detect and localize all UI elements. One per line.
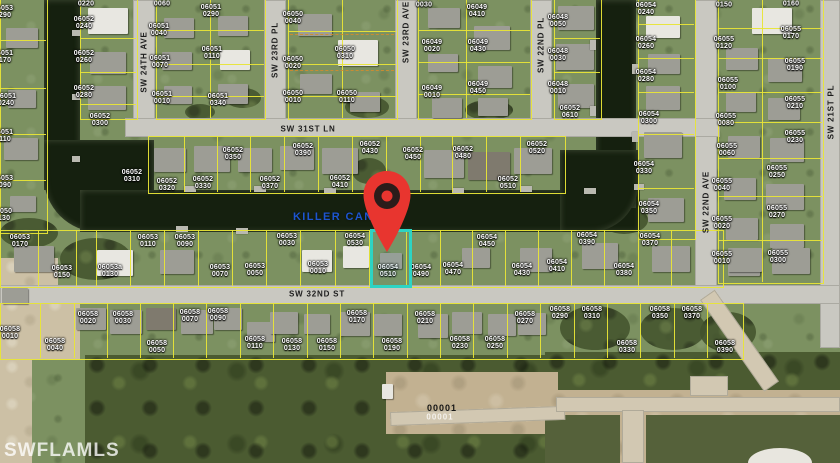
- parcel-line: [574, 303, 575, 358]
- parcel-label: 060550230: [785, 130, 805, 144]
- parcel-label: 060540470: [443, 262, 463, 276]
- parcel-label: 060580390: [715, 340, 735, 354]
- street-pavement: [125, 118, 720, 137]
- parcel-label: 060520480: [453, 146, 473, 160]
- mls-watermark: SWFLAMLS: [4, 440, 120, 462]
- parcel-label: 060510170: [0, 50, 13, 64]
- parcel-line: [164, 230, 165, 286]
- parcel-label: 060540450: [477, 234, 497, 248]
- dirt-road: [690, 376, 728, 396]
- parcel-line: [288, 31, 396, 32]
- parcel-label: 060490020: [422, 39, 442, 53]
- parcel-label: 060550120: [714, 36, 734, 50]
- parcel-label: 060540300: [639, 111, 659, 125]
- parcel-line: [640, 303, 641, 358]
- house-roof: [382, 384, 393, 399]
- parcel-line: [40, 303, 41, 358]
- parcel-label: 060510240: [0, 93, 16, 107]
- parcel-label: 060520610: [560, 105, 580, 119]
- parcel-line: [638, 188, 694, 189]
- vacant-lot-block: [646, 415, 840, 463]
- parcel-label: 060580170: [347, 310, 367, 324]
- parcel-line: [76, 230, 77, 286]
- parcel-label: 060550020: [712, 216, 732, 230]
- parcel-label: 060520330: [193, 176, 213, 190]
- parcel-line: [198, 230, 199, 286]
- parcel-label: 060510290: [201, 4, 221, 18]
- parcel-label: 06053a0130: [98, 264, 123, 278]
- parcel-label: 0220: [78, 1, 94, 8]
- parcel-label: 060550010: [712, 251, 732, 265]
- parcel-line: [284, 136, 285, 192]
- parcel-line: [232, 230, 233, 286]
- parcel-line: [107, 303, 108, 358]
- parcel-label: 060540280: [636, 69, 656, 83]
- parcel-line: [288, 64, 396, 65]
- parcel-line: [217, 136, 218, 192]
- parcel-line: [173, 303, 174, 358]
- parcel-line-dashed: [290, 70, 394, 71]
- parcel-label: 060510340: [208, 93, 228, 107]
- parcel-label: 060530290: [0, 5, 13, 19]
- parcel-label: 060520240: [74, 16, 94, 30]
- parcel-line: [80, 38, 136, 39]
- parcel-line: [671, 230, 672, 286]
- parcel-label: 060540430: [512, 263, 532, 277]
- parcel-label: 060580050: [147, 340, 167, 354]
- parcel-label: 060580290: [550, 306, 570, 320]
- parcel-line: [718, 28, 822, 29]
- parcel-label: 060580010: [0, 326, 20, 340]
- parcel-line: [0, 88, 46, 89]
- parcel-label: 060520520: [527, 141, 547, 155]
- parcel-line: [707, 303, 708, 358]
- street-name-label: SW 23RD PL: [271, 22, 280, 78]
- parcel-line: [607, 303, 608, 358]
- parcel-label: 060540490: [411, 264, 431, 278]
- parcel-label: 060500010: [283, 90, 303, 104]
- parcel-line: [520, 136, 521, 192]
- parcel-label: 060530150: [52, 265, 72, 279]
- parcel-label: 060580090: [208, 308, 228, 322]
- parcel-line: [571, 230, 572, 286]
- parcel-label: 060550300: [768, 250, 788, 264]
- parcel-label: 060550040: [712, 178, 732, 192]
- parcel-label: 060540330: [634, 161, 654, 175]
- parcel-line: [407, 303, 408, 358]
- parcel-label: 0160: [783, 1, 799, 8]
- parcel-line: [554, 72, 600, 73]
- parcel-line: [718, 240, 822, 241]
- parcel-line: [718, 92, 822, 93]
- parcel-line: [718, 158, 822, 159]
- parcel-label: 060520350: [223, 147, 243, 161]
- parcel-label: 060580190: [382, 338, 402, 352]
- parcel-label: 060540260: [636, 36, 656, 50]
- parcel-label: 060580250: [485, 336, 505, 350]
- street-name-label: SW 32ND ST: [289, 290, 345, 299]
- parcel-block-outline: [418, 0, 532, 120]
- parcel-label: 060520310: [122, 169, 142, 183]
- parcel-label: 060580130: [282, 338, 302, 352]
- parcel-label: 060550270: [767, 205, 787, 219]
- parcel-label: 060520280: [74, 85, 94, 99]
- parcel-line: [418, 62, 530, 63]
- vacant-lot-block: [545, 415, 620, 463]
- parcel-line: [638, 134, 694, 135]
- parcel-label: 060540370: [640, 233, 660, 247]
- parcel-line: [240, 303, 241, 358]
- parcel-label: 060520300: [90, 113, 110, 127]
- parcel-line: [130, 230, 131, 286]
- parcel-line: [486, 136, 487, 192]
- parcel-label: 060530090: [0, 175, 13, 189]
- parcel-label: 060510110: [0, 129, 13, 143]
- parcel-line: [420, 136, 421, 192]
- parcel-label: 060580270: [515, 311, 535, 325]
- parcel-line: [604, 230, 605, 286]
- parcel-label: 060520370: [260, 176, 280, 190]
- parcel-line: [80, 104, 136, 105]
- parcel-label: 060550190: [785, 58, 805, 72]
- parcel-label: 060480050: [548, 14, 568, 28]
- parcel-line: [74, 303, 75, 358]
- parcel-label: 060490450: [468, 81, 488, 95]
- parcel-label: 060580310: [582, 306, 602, 320]
- parcel-label: 060490430: [468, 39, 488, 53]
- parcel-label: 0030: [416, 2, 432, 9]
- parcel-line: [318, 136, 319, 192]
- site-number-label-shadow: 00001: [426, 413, 453, 422]
- street-name-label: SW 22ND PL: [537, 17, 546, 73]
- parcel-line: [184, 136, 185, 192]
- parcel-line: [250, 136, 251, 192]
- parcel-label: 060520320: [157, 178, 177, 192]
- parcel-line: [140, 303, 141, 358]
- parcel-label: 060530110: [138, 234, 158, 248]
- parcel-label: 060520410: [330, 175, 350, 189]
- parcel-label: 060550100: [718, 77, 738, 91]
- parcel-label: 060480030: [548, 48, 568, 62]
- parcel-label: 060540380: [614, 263, 634, 277]
- parcel-line: [554, 38, 600, 39]
- aerial-map-image[interactable]: 0220006000300150016006053029006051017006…: [0, 0, 840, 463]
- parcel-line: [718, 196, 822, 197]
- boat-dock: [72, 30, 80, 36]
- boat-dock: [72, 156, 80, 162]
- parcel-line: [273, 303, 274, 358]
- dirt-road: [622, 410, 644, 463]
- parcel-label: 060540410: [547, 259, 567, 273]
- parcel-label: 060530030: [277, 233, 297, 247]
- parcel-line: [452, 136, 453, 192]
- parcel-line: [352, 136, 353, 192]
- street-name-label: SW 22ND AVE: [702, 171, 711, 233]
- parcel-label: 060500110: [337, 90, 357, 104]
- parcel-label: 060500310: [335, 46, 355, 60]
- house-roof: [2, 288, 28, 304]
- parcel-label: 060580070: [180, 309, 200, 323]
- parcel-label: 060580350: [650, 306, 670, 320]
- parcel-label: 060530050: [245, 263, 265, 277]
- boat-dock: [584, 188, 596, 194]
- parcel-label: 060530070: [210, 264, 230, 278]
- parcel-line: [538, 230, 539, 286]
- parcel-label: 060480010: [548, 81, 568, 95]
- parcel-label: 060550080: [716, 113, 736, 127]
- parcel-line-dashed: [290, 34, 394, 35]
- parcel-line: [718, 58, 822, 59]
- parcel-label: 060580210: [415, 311, 435, 325]
- street-name-label: SW 23RD AVE: [402, 1, 411, 63]
- parcel-line: [540, 303, 541, 358]
- parcel-label: 060520430: [360, 141, 380, 155]
- parcel-line: [156, 64, 264, 65]
- parcel-label: 060500040: [283, 11, 303, 25]
- parcel-label: 060520390: [293, 143, 313, 157]
- parcel-label: 060540350: [639, 201, 659, 215]
- street-name-label: SW 21ST PL: [827, 85, 836, 140]
- parcel-label: 060520510: [498, 176, 518, 190]
- parcel-label: 060510070: [150, 55, 170, 69]
- dirt-road: [556, 397, 840, 412]
- site-number-label: 00001: [427, 403, 457, 413]
- parcel-line: [300, 230, 301, 286]
- parcel-label: 060500020: [283, 56, 303, 70]
- parcel-label: 060580150: [317, 338, 337, 352]
- parcel-label: 060510010: [152, 91, 172, 105]
- parcel-label: 060520450: [403, 147, 423, 161]
- parcel-line: [340, 303, 341, 358]
- parcel-line: [472, 230, 473, 286]
- parcel-label: 060540390: [577, 232, 597, 246]
- parcel-line: [473, 303, 474, 358]
- parcel-line: [638, 58, 694, 59]
- parcel-line: [156, 30, 264, 31]
- parcel-line: [38, 230, 39, 286]
- parcel-label: 060580020: [78, 311, 98, 325]
- parcel-label: 060580110: [245, 336, 265, 350]
- parcel-line: [418, 30, 530, 31]
- parcel-label: 060530010: [308, 261, 328, 275]
- parcel-label: 060550060: [717, 143, 737, 157]
- parcel-label: 060550250: [767, 165, 787, 179]
- parcel-line: [80, 72, 136, 73]
- parcel-line: [335, 230, 336, 286]
- parcel-label: 0060: [154, 1, 170, 8]
- parcel-label: 060490010: [422, 85, 442, 99]
- parcel-line: [638, 24, 694, 25]
- parcel-line: [440, 230, 441, 286]
- parcel-label: 060580370: [682, 306, 702, 320]
- parcel-label: 060580230: [450, 336, 470, 350]
- parcel-label: 060530170: [10, 234, 30, 248]
- parcel-line: [507, 303, 508, 358]
- parcel-block-outline: [0, 0, 48, 234]
- parcel-label: 060510040: [149, 23, 169, 37]
- parcel-label: 060530090: [175, 234, 195, 248]
- parcel-label: 060520260: [74, 50, 94, 64]
- parcel-label: 060550170: [781, 26, 801, 40]
- parcel-line: [307, 303, 308, 358]
- parcel-label: 060550210: [785, 96, 805, 110]
- parcel-line: [0, 40, 46, 41]
- parcel-line: [674, 303, 675, 358]
- parcel-label: 060540240: [636, 2, 656, 16]
- parcel-label: 060490410: [467, 4, 487, 18]
- parcel-line: [638, 92, 694, 93]
- parcel-line: [505, 230, 506, 286]
- parcel-label: 060580330: [617, 340, 637, 354]
- location-pin-icon[interactable]: [360, 170, 414, 254]
- parcel-label: 060500130: [0, 208, 12, 222]
- parcel-line: [373, 303, 374, 358]
- street-name-label: SW 31ST LN: [280, 125, 335, 134]
- parcel-label: 060580040: [45, 338, 65, 352]
- parcel-label: 060510110: [202, 46, 222, 60]
- parcel-label: 060580030: [113, 311, 133, 325]
- street-name-label: SW 24TH AVE: [140, 31, 149, 92]
- parcel-line: [440, 303, 441, 358]
- parcel-label: 0150: [716, 2, 732, 9]
- parcel-line: [266, 230, 267, 286]
